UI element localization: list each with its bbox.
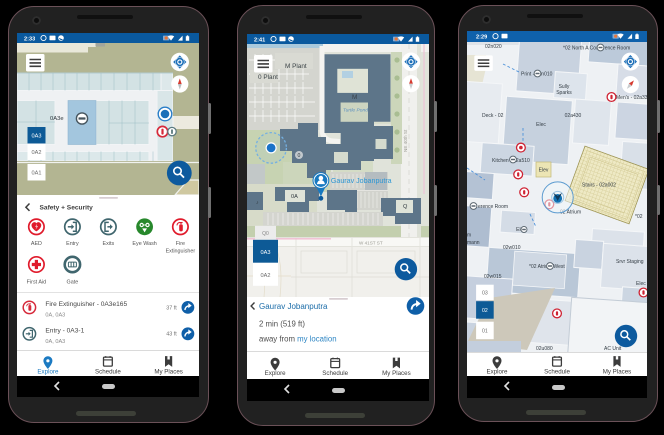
svg-text:Elec: Elec xyxy=(536,122,546,128)
svg-text:Gaurav Jobanputra: Gaurav Jobanputra xyxy=(331,177,392,185)
svg-text:0A2: 0A2 xyxy=(261,273,271,279)
svg-text:Turtle Pond: Turtle Pond xyxy=(343,108,368,114)
svg-text:m: m xyxy=(467,232,471,238)
svg-text:NE 40th St: NE 40th St xyxy=(403,129,408,152)
svg-text:Explore: Explore xyxy=(37,368,59,375)
svg-text:0: 0 xyxy=(298,153,301,159)
svg-text:away from my location: away from my location xyxy=(259,335,337,344)
svg-text:02: 02 xyxy=(482,308,488,314)
svg-text:Extinguisher: Extinguisher xyxy=(166,248,196,254)
svg-text:Deck - 02: Deck - 02 xyxy=(482,113,504,119)
svg-text:43 ft: 43 ft xyxy=(166,331,177,337)
svg-text:mann: mann xyxy=(467,240,480,246)
svg-text:Elec: Elec xyxy=(636,281,646,287)
svg-text:Entry: Entry xyxy=(66,241,79,247)
svg-text:02w010: 02w010 xyxy=(503,245,521,251)
svg-text:Safety + Security: Safety + Security xyxy=(40,204,94,211)
svg-text:0A, 0A3: 0A, 0A3 xyxy=(45,338,65,344)
svg-text:Men's - 02a33: Men's - 02a33 xyxy=(616,95,647,101)
svg-text:Entry - 0A3-1: Entry - 0A3-1 xyxy=(45,327,84,334)
svg-text:Schedule: Schedule xyxy=(95,368,121,375)
svg-text:erence Room: erence Room xyxy=(478,204,508,210)
svg-text:My Places: My Places xyxy=(603,368,632,375)
svg-text:0A: 0A xyxy=(291,194,298,200)
svg-text:M Plant: M Plant xyxy=(285,63,307,70)
svg-text:♪: ♪ xyxy=(256,200,259,206)
svg-text:0A3e: 0A3e xyxy=(50,116,64,122)
svg-text:Eye Wash: Eye Wash xyxy=(132,241,156,247)
svg-text:First Aid: First Aid xyxy=(27,279,46,285)
svg-text:0A3: 0A3 xyxy=(32,134,42,140)
svg-text:02n020: 02n020 xyxy=(485,44,502,50)
svg-text:*02 North A Conference Room: *02 North A Conference Room xyxy=(563,45,630,51)
svg-text:0A, 0A3: 0A, 0A3 xyxy=(45,312,65,318)
svg-text:AC Unit: AC Unit xyxy=(604,346,622,352)
svg-text:0 Plant: 0 Plant xyxy=(258,74,278,81)
svg-text:Gate: Gate xyxy=(67,279,79,285)
svg-text:Explore: Explore xyxy=(487,368,509,375)
svg-text:02u080: 02u080 xyxy=(536,346,553,352)
svg-text:*02: *02 xyxy=(635,214,643,220)
svg-text:M: M xyxy=(352,94,357,101)
svg-text:01: 01 xyxy=(482,328,488,334)
svg-text:Sparks: Sparks xyxy=(556,90,572,96)
svg-text:Q: Q xyxy=(403,204,408,210)
svg-text:Gaurav Jobanputra: Gaurav Jobanputra xyxy=(259,302,328,311)
svg-text:03: 03 xyxy=(482,290,488,296)
svg-text:Fire Extinguisher - 0A3e165: Fire Extinguisher - 0A3e165 xyxy=(45,300,127,307)
svg-text:0A3: 0A3 xyxy=(261,250,271,256)
svg-text:Stairs - 02a002: Stairs - 02a002 xyxy=(582,182,616,188)
svg-text:37 ft: 37 ft xyxy=(166,305,177,311)
svg-text:Explore: Explore xyxy=(265,370,287,377)
svg-text:0A1: 0A1 xyxy=(32,171,42,177)
svg-text:Q0: Q0 xyxy=(262,231,269,237)
svg-text:Exits: Exits xyxy=(103,241,115,247)
svg-text:AED: AED xyxy=(31,241,42,247)
svg-text:Fire: Fire xyxy=(176,241,185,247)
svg-text:My Places: My Places xyxy=(382,370,411,377)
svg-text:02w015: 02w015 xyxy=(484,274,502,280)
svg-text:2:41: 2:41 xyxy=(254,37,265,43)
svg-text:02a430: 02a430 xyxy=(565,113,582,119)
svg-text:Schedule: Schedule xyxy=(544,368,570,375)
svg-text:Srvr Staging: Srvr Staging xyxy=(616,259,644,265)
svg-text:2:29: 2:29 xyxy=(476,35,487,41)
svg-text:My Places: My Places xyxy=(154,368,183,375)
svg-text:Elev: Elev xyxy=(539,167,549,173)
svg-text:0A2: 0A2 xyxy=(32,150,42,156)
svg-text:2:33: 2:33 xyxy=(24,36,35,42)
svg-text:2 min (519 ft): 2 min (519 ft) xyxy=(259,320,305,329)
svg-text:Schedule: Schedule xyxy=(322,370,348,377)
svg-text:W 41ST ST: W 41ST ST xyxy=(359,241,383,246)
